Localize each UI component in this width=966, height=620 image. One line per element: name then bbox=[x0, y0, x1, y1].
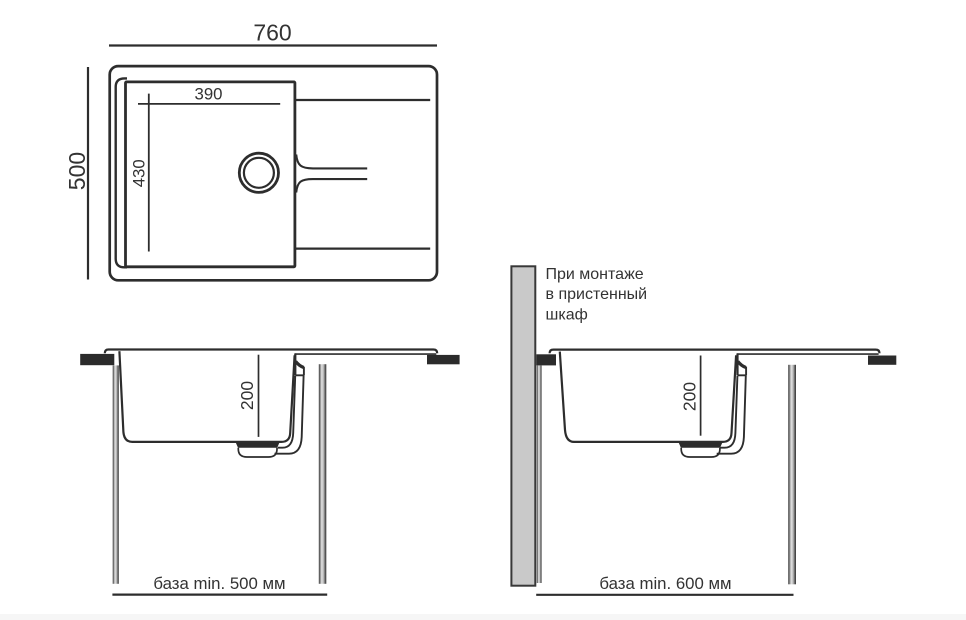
svg-text:200: 200 bbox=[679, 382, 699, 411]
svg-text:430: 430 bbox=[129, 159, 148, 187]
svg-text:в пристенный: в пристенный bbox=[546, 286, 648, 303]
svg-text:760: 760 bbox=[253, 20, 291, 46]
svg-text:200: 200 bbox=[237, 381, 257, 410]
svg-text:база min. 600 мм: база min. 600 мм bbox=[599, 574, 731, 593]
svg-text:390: 390 bbox=[195, 84, 223, 103]
svg-text:При монтаже: При монтаже bbox=[546, 266, 644, 283]
svg-text:шкаф: шкаф bbox=[546, 307, 588, 324]
svg-text:база min. 500 мм: база min. 500 мм bbox=[153, 574, 285, 593]
svg-text:500: 500 bbox=[64, 152, 90, 190]
